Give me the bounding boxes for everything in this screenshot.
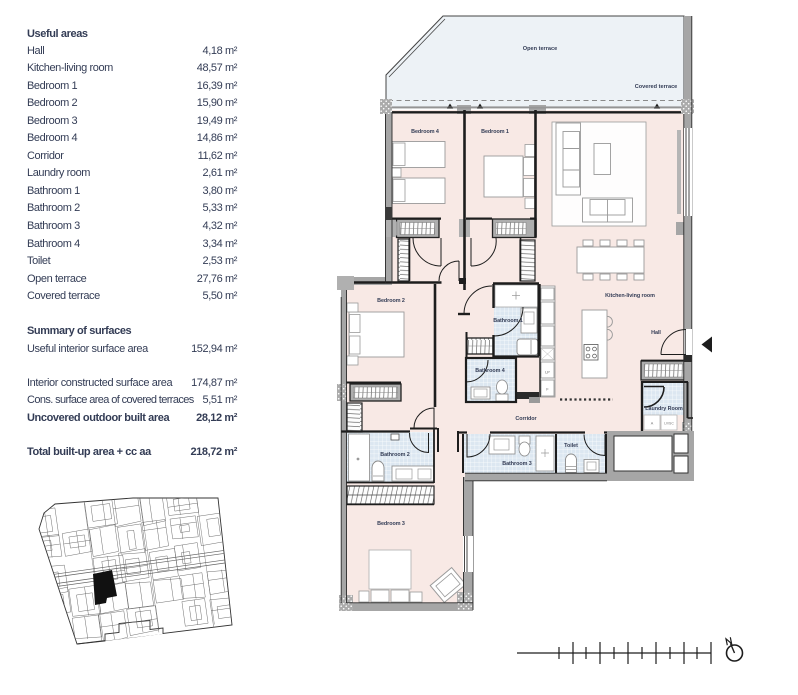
svg-text:Bathroom 3: Bathroom 3 — [502, 461, 532, 467]
svg-text:Corridor: Corridor — [515, 416, 537, 422]
svg-text:Bathroom 1: Bathroom 1 — [493, 318, 523, 324]
svg-text:Bathroom 4: Bathroom 4 — [475, 368, 505, 374]
svg-text:Open terrace: Open terrace — [523, 46, 558, 52]
svg-text:Bedroom 4: Bedroom 4 — [411, 129, 439, 135]
svg-text:Bedroom 2: Bedroom 2 — [377, 298, 405, 304]
svg-text:Bedroom 1: Bedroom 1 — [481, 129, 509, 135]
svg-text:Hall: Hall — [651, 330, 661, 336]
svg-text:Toilet: Toilet — [564, 443, 578, 449]
svg-text:Kitchen-living room: Kitchen-living room — [605, 293, 655, 299]
svg-text:Covered terrace: Covered terrace — [635, 84, 678, 90]
svg-text:Bathroom 2: Bathroom 2 — [380, 452, 410, 458]
svg-text:LV/SC: LV/SC — [664, 422, 674, 426]
svg-text:Bedroom 3: Bedroom 3 — [377, 521, 405, 527]
svg-text:A: A — [651, 422, 654, 426]
svg-text:Laundry Room: Laundry Room — [645, 406, 683, 412]
svg-text:LP: LP — [545, 371, 550, 375]
